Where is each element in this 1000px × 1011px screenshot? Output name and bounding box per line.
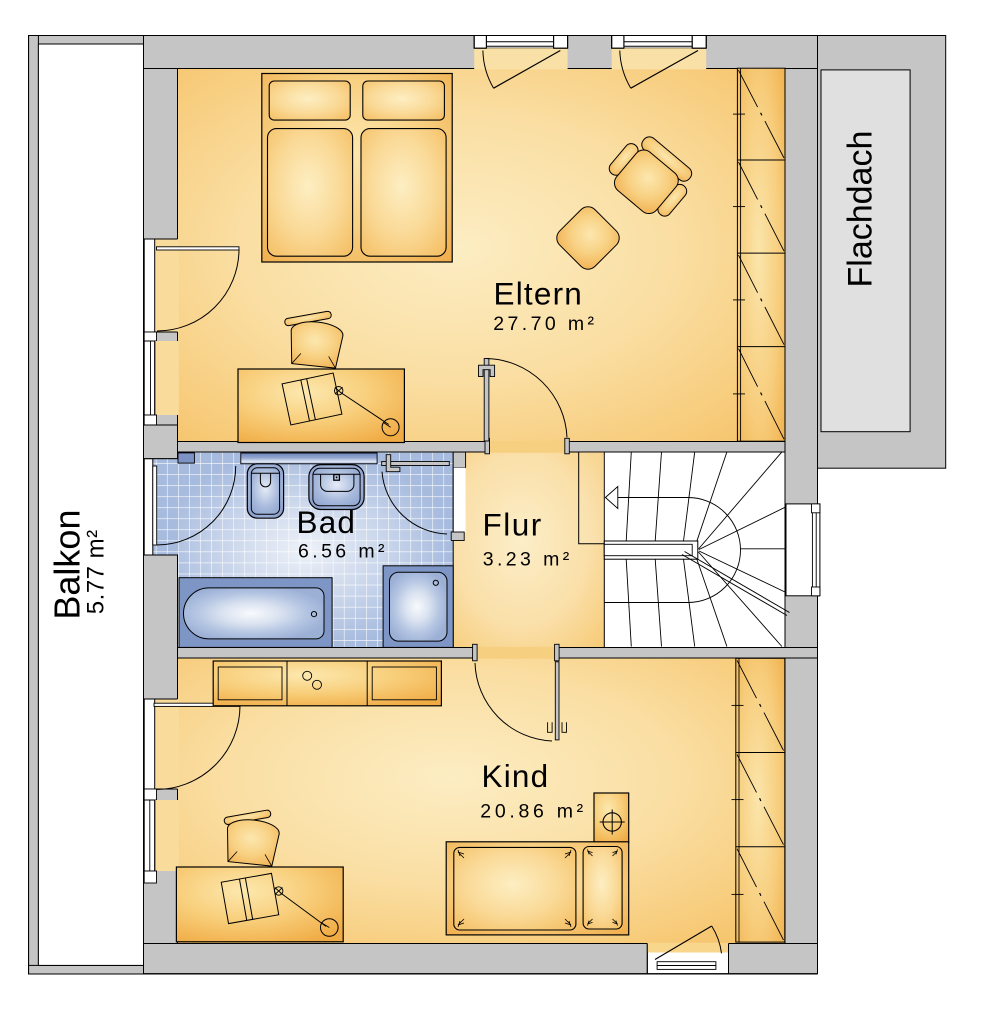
svg-text:5.77 m²: 5.77 m² — [83, 529, 110, 614]
svg-text:3.23 m²: 3.23 m² — [483, 549, 573, 571]
svg-text:Kind: Kind — [482, 758, 550, 794]
svg-text:6.56 m²: 6.56 m² — [298, 540, 388, 562]
svg-text:Flachdach: Flachdach — [842, 131, 880, 288]
svg-text:Bad: Bad — [297, 504, 357, 540]
svg-text:27.70 m²: 27.70 m² — [493, 313, 597, 335]
svg-text:Eltern: Eltern — [494, 276, 584, 312]
svg-text:20.86 m²: 20.86 m² — [480, 801, 587, 823]
svg-text:Balkon: Balkon — [47, 510, 88, 620]
svg-text:Flur: Flur — [483, 507, 543, 543]
